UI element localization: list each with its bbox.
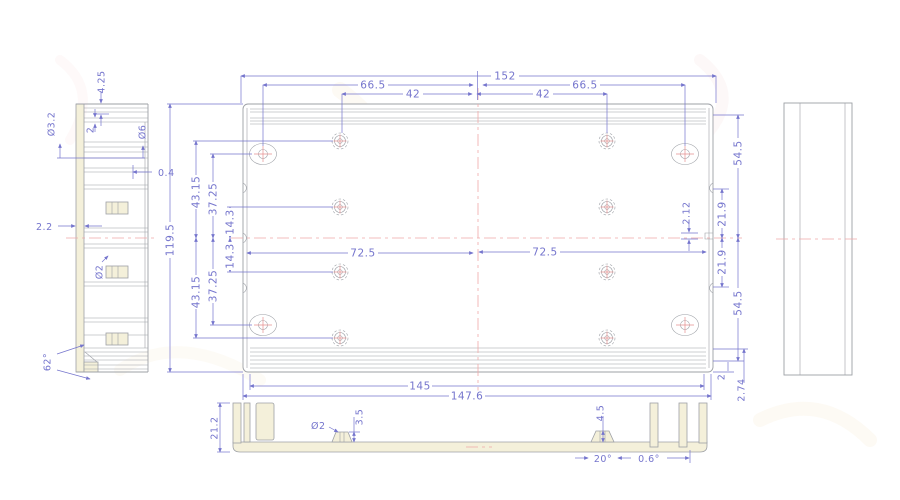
svg-text:72.5: 72.5 — [532, 247, 557, 259]
svg-text:21.9: 21.9 — [717, 201, 729, 226]
dim-66-5-left: 66.5 — [358, 80, 388, 92]
svg-text:21.2: 21.2 — [210, 416, 221, 439]
svg-text:43.15: 43.15 — [191, 276, 203, 309]
svg-text:2.12: 2.12 — [682, 201, 693, 224]
dim-43-15-top: 43.15 — [191, 175, 203, 209]
dim-20-deg: 20° — [594, 454, 612, 465]
dim-37-25-bottom: 37.25 — [208, 269, 220, 303]
dim-0-6-deg: 0.6° — [638, 454, 660, 465]
svg-text:152: 152 — [494, 71, 516, 83]
dim-14-3-bottom: 14.3 — [225, 242, 237, 270]
dim-145: 145 — [408, 381, 432, 393]
drawing-sheet: 152 66.5 42 66.5 42 72.5 72.5 145 147.6 … — [0, 0, 900, 500]
svg-text:14.3: 14.3 — [225, 209, 237, 234]
dim-42-right: 42 — [533, 89, 553, 101]
dim-4-5: 4.5 — [596, 405, 607, 422]
dim-21-2: 21.2 — [210, 416, 221, 439]
dim-4-25: 4.25 — [97, 70, 108, 93]
dim-3-5: 3.5 — [355, 409, 366, 426]
dim-dia-3-2: Ø3.2 — [47, 112, 58, 137]
dim-2-12: 2.12 — [682, 201, 693, 224]
dim-66-5-right: 66.5 — [570, 80, 600, 92]
svg-text:66.5: 66.5 — [360, 80, 385, 92]
svg-text:3.5: 3.5 — [355, 409, 366, 426]
dim-62-deg: 62° — [43, 353, 54, 371]
dim-0-4: 0.4 — [158, 168, 175, 179]
svg-text:4.5: 4.5 — [596, 405, 607, 422]
screw-boss — [106, 202, 128, 214]
dim-147-6: 147.6 — [449, 391, 485, 403]
dim-72-5-right: 72.5 — [530, 247, 560, 259]
svg-text:43.15: 43.15 — [191, 176, 203, 209]
svg-text:Ø6: Ø6 — [138, 125, 149, 140]
svg-text:2.74: 2.74 — [737, 378, 748, 401]
dim-dia-2-left: Ø2 — [95, 265, 106, 280]
dim-dia-2-bottom: Ø2 — [311, 421, 326, 432]
svg-text:37.25: 37.25 — [208, 183, 220, 216]
dim-152: 152 — [491, 71, 519, 83]
svg-text:14.3: 14.3 — [225, 243, 237, 268]
dim-2-74: 2.74 — [737, 378, 748, 401]
svg-text:54.5: 54.5 — [733, 290, 745, 315]
svg-text:145: 145 — [409, 381, 431, 393]
svg-text:37.25: 37.25 — [208, 270, 220, 303]
dim-21-9-bottom: 21.9 — [717, 248, 729, 276]
svg-text:21.9: 21.9 — [717, 249, 729, 274]
dim-54-5-bottom: 54.5 — [733, 288, 745, 318]
dim-37-25-top: 37.25 — [208, 182, 220, 216]
svg-text:54.5: 54.5 — [733, 140, 745, 165]
svg-text:66.5: 66.5 — [572, 80, 597, 92]
svg-text:119.5: 119.5 — [165, 224, 177, 257]
dim-72-5-left: 72.5 — [348, 248, 378, 260]
dim-119-5: 119.5 — [165, 222, 177, 258]
svg-text:147.6: 147.6 — [451, 391, 484, 403]
dim-42-left: 42 — [403, 89, 423, 101]
dim-2-left: 2 — [86, 127, 97, 134]
screw-boss — [106, 333, 128, 345]
engineering-drawing-canvas: 152 66.5 42 66.5 42 72.5 72.5 145 147.6 … — [0, 0, 900, 500]
dim-2-right: 2 — [717, 374, 728, 381]
right-side-view — [776, 103, 860, 375]
left-view-fin-lines — [84, 108, 148, 369]
svg-text:62°: 62° — [43, 353, 54, 371]
plan-view — [231, 88, 742, 392]
left-section-view — [66, 104, 158, 372]
rivet-bump — [332, 432, 352, 442]
svg-text:2: 2 — [717, 374, 728, 381]
svg-text:4.25: 4.25 — [97, 70, 108, 93]
svg-text:72.5: 72.5 — [350, 248, 375, 260]
svg-text:2: 2 — [86, 127, 97, 134]
svg-text:Ø2: Ø2 — [95, 265, 106, 280]
svg-text:Ø3.2: Ø3.2 — [47, 112, 58, 137]
dim-43-15-bottom: 43.15 — [191, 275, 203, 309]
rivet-bump — [591, 431, 614, 442]
dim-14-3-top: 14.3 — [225, 208, 237, 236]
screw-boss — [106, 266, 128, 278]
dim-21-9-top: 21.9 — [717, 200, 729, 228]
dim-54-5-top: 54.5 — [733, 138, 745, 168]
dim-2-2: 2.2 — [36, 222, 53, 233]
bottom-section-view — [233, 403, 707, 452]
svg-text:42: 42 — [406, 89, 420, 101]
svg-text:42: 42 — [536, 89, 550, 101]
dim-dia-6: Ø6 — [138, 125, 149, 140]
